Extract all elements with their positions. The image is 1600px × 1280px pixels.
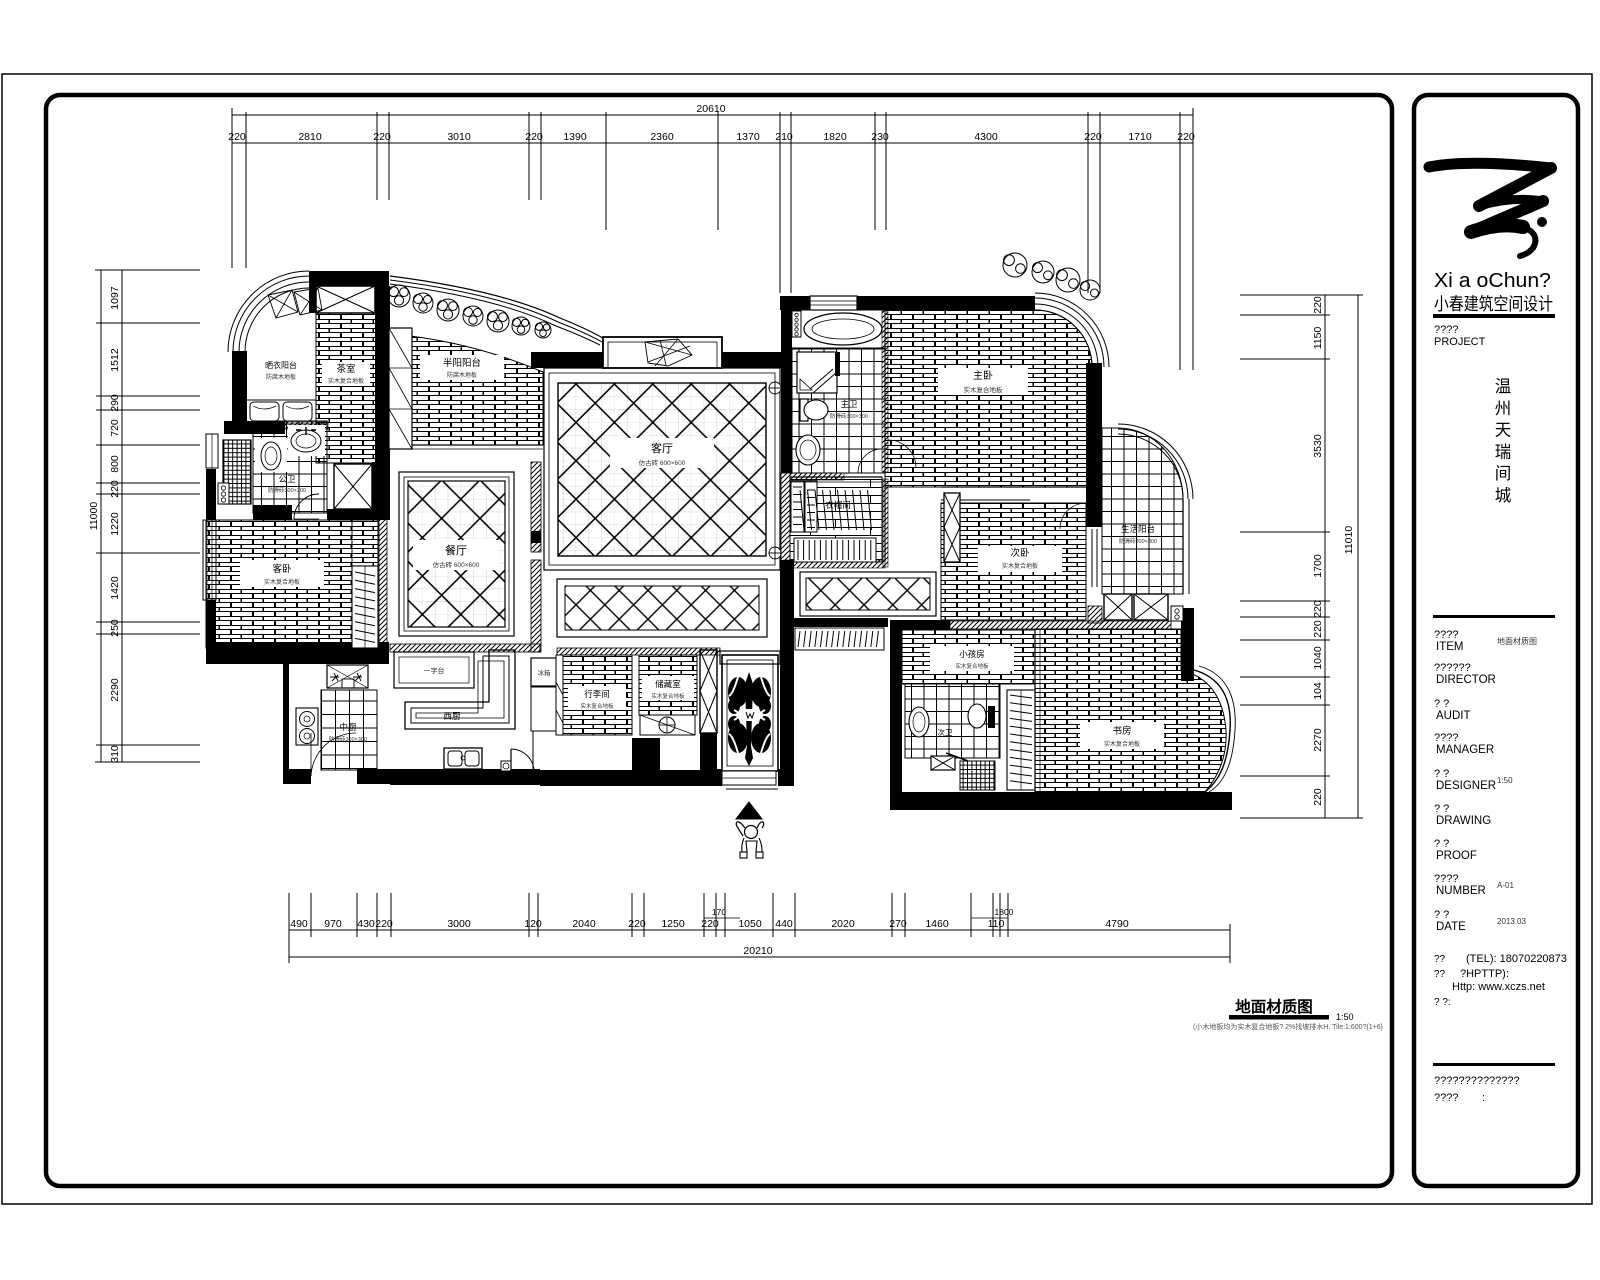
svg-text:1:50: 1:50 [1497,776,1513,785]
svg-text:A-01: A-01 [1497,881,1514,890]
svg-text:210: 210 [775,131,793,143]
svg-text:半阳阳台: 半阳阳台 [443,357,481,369]
svg-text:地面材质图: 地面材质图 [1235,997,1313,1016]
svg-text:实木复合地板: 实木复合地板 [964,385,1004,394]
svg-text:MANAGER: MANAGER [1436,744,1494,756]
svg-text:中厨: 中厨 [339,722,357,732]
svg-text:2040: 2040 [572,918,596,930]
svg-text:120: 120 [524,918,542,930]
svg-text:1050: 1050 [738,918,762,930]
svg-text:PROJECT: PROJECT [1434,336,1486,348]
svg-text:主卫: 主卫 [840,399,858,409]
svg-text:2360: 2360 [650,131,674,143]
svg-text:瑞: 瑞 [1495,442,1512,461]
svg-text:客卧: 客卧 [272,563,292,575]
svg-text:??????????????: ?????????????? [1434,1075,1520,1087]
svg-text:????: ???? [1434,873,1458,885]
svg-text:间: 间 [1495,464,1512,483]
svg-text:1800: 1800 [995,907,1014,917]
svg-text:4300: 4300 [974,131,998,143]
svg-text:11010: 11010 [1343,526,1355,555]
svg-text:1370: 1370 [736,131,760,143]
svg-text:? ?: ? ? [1434,768,1449,780]
svg-text:2020: 2020 [831,918,855,930]
svg-text:270: 270 [889,918,907,930]
svg-text:170: 170 [712,907,726,917]
svg-text:一字台: 一字台 [424,666,445,675]
svg-text:? ?:: ? ?: [1434,997,1451,1008]
svg-text:生活阳台: 生活阳台 [1121,524,1155,534]
svg-text:州: 州 [1495,400,1512,418]
svg-text:NUMBER: NUMBER [1436,885,1486,897]
svg-text:1820: 1820 [823,131,847,143]
svg-text:冰箱: 冰箱 [538,668,552,677]
svg-text:公卫: 公卫 [278,474,296,484]
svg-text:客厅: 客厅 [651,441,673,455]
svg-text:????: ???? [1434,629,1458,641]
svg-text:实木复合地板: 实木复合地板 [1002,562,1038,570]
svg-text:????: ???? [1434,1092,1458,1104]
svg-text:230: 230 [871,131,889,143]
svg-text:防滑砖300×300: 防滑砖300×300 [1119,537,1157,545]
svg-text:防腐木地板: 防腐木地板 [266,373,296,381]
svg-text:??: ?? [1434,954,1446,965]
svg-text:970: 970 [324,918,342,930]
svg-text:仿古砖 600×600: 仿古砖 600×600 [639,458,686,467]
svg-text:????: ???? [1434,732,1458,744]
svg-text:??????: ?????? [1434,662,1471,674]
svg-text:1097: 1097 [109,286,121,310]
svg-text:实木复合地板: 实木复合地板 [955,662,989,670]
svg-text:实木复合地板: 实木复合地板 [1104,740,1140,748]
svg-text:110: 110 [988,918,1005,930]
svg-text:DRAWING: DRAWING [1436,815,1491,827]
svg-text:地面材质图: 地面材质图 [1497,636,1537,646]
svg-text:(小木地板均为实木复合地板? 2%找坡排水H. Tile:1: (小木地板均为实木复合地板? 2%找坡排水H. Tile:1:600?{1+6} [1193,1022,1384,1031]
svg-text:220: 220 [1312,600,1324,618]
svg-text:??: ?? [1434,969,1446,980]
svg-text:1220: 1220 [109,512,121,536]
svg-text:书房: 书房 [1112,725,1131,737]
svg-text:220: 220 [1177,131,1195,143]
svg-text:4790: 4790 [1105,918,1129,930]
svg-text:220: 220 [109,480,121,498]
svg-text:220: 220 [1312,620,1324,638]
svg-text:3530: 3530 [1312,434,1324,458]
svg-text:220: 220 [701,918,719,930]
svg-text:防滑砖300×300: 防滑砖300×300 [268,486,306,494]
svg-text:实木复合地板: 实木复合地板 [580,702,614,710]
svg-text:储藏室: 储藏室 [655,679,681,689]
svg-text:Xi a oChun?: Xi a oChun? [1434,270,1551,292]
svg-text:11000: 11000 [88,502,100,531]
svg-text:220: 220 [628,918,646,930]
svg-text:220: 220 [1312,788,1324,806]
svg-text:DIRECTOR: DIRECTOR [1436,674,1496,686]
svg-text:?HPTTP):: ?HPTTP): [1460,968,1509,980]
svg-text:20210: 20210 [743,945,772,957]
svg-text:3010: 3010 [447,131,471,143]
svg-text:防腐木地板: 防腐木地板 [447,371,477,379]
svg-text:2810: 2810 [298,131,322,143]
svg-text:220: 220 [525,131,543,143]
svg-text:3000: 3000 [447,918,471,930]
svg-text:DATE: DATE [1436,921,1466,933]
svg-text:AUDIT: AUDIT [1436,710,1471,722]
svg-text:温: 温 [1495,377,1512,396]
svg-text:天: 天 [1495,422,1512,440]
svg-text:220: 220 [375,918,393,930]
svg-text:(TEL): 18070220873: (TEL): 18070220873 [1466,953,1567,965]
svg-text:? ?: ? ? [1434,803,1449,815]
svg-text:ITEM: ITEM [1436,641,1463,653]
svg-text:????: ???? [1434,324,1458,336]
svg-text:490: 490 [290,918,308,930]
svg-text:PROOF: PROOF [1436,850,1477,862]
svg-text:290: 290 [109,394,121,412]
svg-text:250: 250 [109,619,121,637]
svg-text:? ?: ? ? [1434,909,1449,921]
svg-text:1460: 1460 [925,918,949,930]
svg-text:? ?: ? ? [1434,698,1449,710]
svg-text:1390: 1390 [563,131,587,143]
svg-text:小春建筑空间设计: 小春建筑空间设计 [1434,294,1553,314]
svg-text:1:50: 1:50 [1336,1012,1354,1022]
svg-text:2013.03: 2013.03 [1497,917,1526,926]
svg-text:实木复合地板: 实木复合地板 [651,692,685,700]
svg-text:小孩房: 小孩房 [959,649,985,659]
svg-text:20610: 20610 [696,103,725,115]
svg-text:餐厅: 餐厅 [445,543,467,557]
svg-text:DESIGNER: DESIGNER [1436,780,1496,792]
svg-text:西厨: 西厨 [443,711,461,721]
svg-text:1420: 1420 [109,576,121,600]
svg-text:2290: 2290 [109,678,121,702]
svg-text:? ?: ? ? [1434,838,1449,850]
svg-text:城: 城 [1495,486,1512,505]
svg-text:茶室: 茶室 [336,363,355,375]
svg-text:2270: 2270 [1312,728,1324,752]
svg-text:1150: 1150 [1312,327,1324,350]
svg-text:次卫: 次卫 [938,727,953,737]
svg-text:1250: 1250 [661,918,685,930]
svg-text::: : [1482,1092,1485,1104]
svg-text:430: 430 [357,918,375,930]
svg-text:仿古砖 600×600: 仿古砖 600×600 [433,560,480,569]
svg-text:220: 220 [1312,296,1324,314]
svg-text:800: 800 [109,455,121,473]
svg-text:220: 220 [373,131,391,143]
svg-text:1512: 1512 [109,348,121,372]
svg-text:行李间: 行李间 [584,689,610,699]
svg-text:防滑砖300×300: 防滑砖300×300 [830,412,868,420]
svg-text:104: 104 [1312,682,1324,700]
svg-text:晒衣阳台: 晒衣阳台 [265,360,297,370]
svg-text:1710: 1710 [1128,131,1152,143]
svg-text:720: 720 [109,419,121,437]
svg-text:1040: 1040 [1312,646,1324,670]
svg-text:Http: www.xczs.net: Http: www.xczs.net [1452,981,1545,993]
svg-text:防滑砖300×300: 防滑砖300×300 [329,735,367,743]
svg-text:310: 310 [109,745,121,763]
svg-text:实木复合地板: 实木复合地板 [264,578,300,586]
svg-text:220: 220 [1084,131,1102,143]
svg-text:440: 440 [775,918,793,930]
svg-text:实木复合地板: 实木复合地板 [328,377,364,385]
svg-text:220: 220 [228,131,246,143]
svg-text:主卧: 主卧 [973,369,993,382]
svg-text:1700: 1700 [1312,554,1324,578]
svg-text:次卧: 次卧 [1010,547,1030,559]
